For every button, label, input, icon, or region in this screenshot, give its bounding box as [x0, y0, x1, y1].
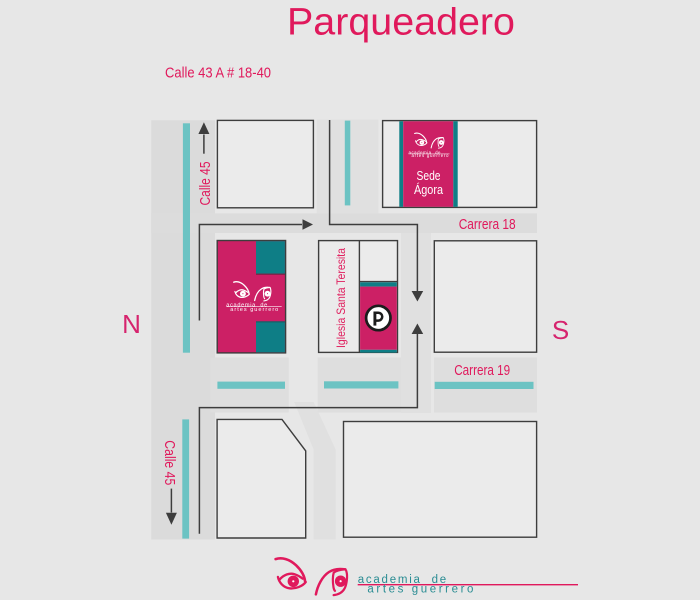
svg-text:S: S [552, 315, 569, 345]
svg-text:artes guerrero: artes guerrero [367, 584, 473, 596]
svg-text:Ágora: Ágora [414, 182, 444, 197]
svg-text:artes guerrero: artes guerrero [230, 307, 278, 313]
svg-text:Calle 45: Calle 45 [161, 440, 178, 485]
svg-text:N: N [122, 309, 141, 339]
svg-text:Iglesia Santa Teresita: Iglesia Santa Teresita [334, 248, 348, 348]
svg-text:Carrera 18: Carrera 18 [459, 216, 516, 233]
svg-text:Parqueadero: Parqueadero [287, 2, 515, 44]
svg-text:artes guerrero: artes guerrero [412, 153, 450, 158]
svg-text:Sede: Sede [417, 168, 441, 183]
svg-text:Calle 43 A # 18-40: Calle 43 A # 18-40 [165, 64, 271, 81]
svg-text:Calle 45: Calle 45 [197, 162, 214, 206]
svg-text:Carrera 19: Carrera 19 [454, 362, 510, 379]
